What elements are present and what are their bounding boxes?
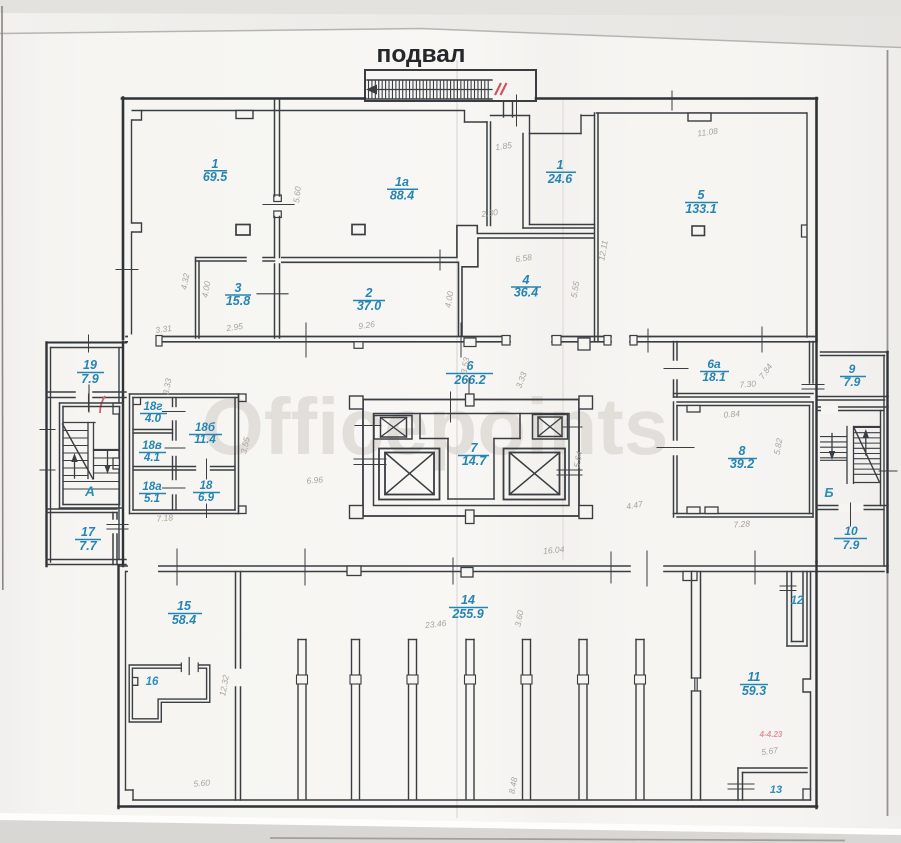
svg-text:24.6: 24.6 (547, 172, 573, 186)
svg-text:Б: Б (824, 485, 833, 500)
svg-text:1: 1 (557, 158, 564, 172)
svg-text:133.1: 133.1 (685, 202, 716, 216)
svg-text:88.4: 88.4 (390, 189, 414, 203)
svg-text:7.9: 7.9 (843, 538, 860, 552)
svg-text:7.9: 7.9 (81, 372, 98, 386)
svg-text:266.2: 266.2 (453, 373, 485, 387)
svg-text:11.4: 11.4 (194, 434, 216, 446)
svg-text:15.8: 15.8 (226, 294, 250, 308)
svg-text:18.1: 18.1 (702, 370, 726, 384)
svg-text:Officepoints: Officepoints (202, 382, 669, 471)
svg-text:6.96: 6.96 (306, 474, 324, 485)
svg-text:4.0: 4.0 (144, 413, 162, 425)
svg-text:1а: 1а (395, 175, 409, 189)
svg-text:5.1: 5.1 (144, 493, 160, 505)
svg-text:36.4: 36.4 (514, 286, 538, 300)
svg-text:2: 2 (365, 286, 373, 300)
svg-text:18: 18 (200, 480, 213, 492)
svg-text:5.60: 5.60 (193, 777, 211, 788)
svg-text:4-4.23: 4-4.23 (759, 730, 783, 739)
svg-text:17: 17 (81, 525, 96, 539)
svg-text:7.9: 7.9 (844, 375, 861, 389)
svg-text:15: 15 (177, 599, 192, 613)
svg-text:3: 3 (235, 281, 242, 295)
svg-text:А: А (84, 484, 95, 499)
svg-text:19: 19 (83, 358, 97, 372)
svg-text:подвал: подвал (377, 41, 466, 68)
svg-text:18а: 18а (142, 481, 162, 493)
svg-text:7.7: 7.7 (79, 539, 97, 553)
svg-text:7.18: 7.18 (156, 512, 174, 523)
svg-text:18в: 18в (142, 440, 162, 452)
svg-text:8: 8 (739, 444, 746, 458)
svg-text:5.60: 5.60 (291, 186, 303, 204)
svg-text:7.28: 7.28 (733, 518, 751, 529)
svg-text:69.5: 69.5 (203, 170, 228, 184)
svg-text:13: 13 (770, 784, 782, 796)
svg-text:14.7: 14.7 (462, 454, 487, 468)
svg-text:5: 5 (698, 188, 706, 202)
svg-text:37.0: 37.0 (357, 299, 381, 313)
svg-text:14: 14 (461, 593, 475, 607)
svg-text:6.9: 6.9 (198, 492, 215, 504)
svg-text:255.9: 255.9 (451, 607, 483, 621)
svg-text:7.30: 7.30 (739, 378, 757, 389)
svg-text:0.84: 0.84 (723, 408, 741, 419)
svg-text:9: 9 (849, 362, 856, 376)
svg-text:12: 12 (791, 595, 804, 607)
svg-text:7: 7 (471, 441, 479, 455)
svg-text:6а: 6а (707, 357, 721, 371)
svg-text:59.3: 59.3 (742, 684, 766, 698)
svg-text:4.1: 4.1 (143, 452, 160, 464)
svg-text:1: 1 (212, 157, 219, 171)
svg-text:10: 10 (844, 524, 858, 538)
svg-text:16.04: 16.04 (543, 544, 565, 556)
svg-text:39.2: 39.2 (730, 457, 754, 471)
svg-text:16: 16 (146, 676, 159, 688)
svg-text:18б: 18б (195, 422, 216, 434)
svg-text:11: 11 (748, 670, 761, 684)
svg-text:58.4: 58.4 (172, 613, 196, 627)
svg-text:18г: 18г (144, 401, 163, 413)
